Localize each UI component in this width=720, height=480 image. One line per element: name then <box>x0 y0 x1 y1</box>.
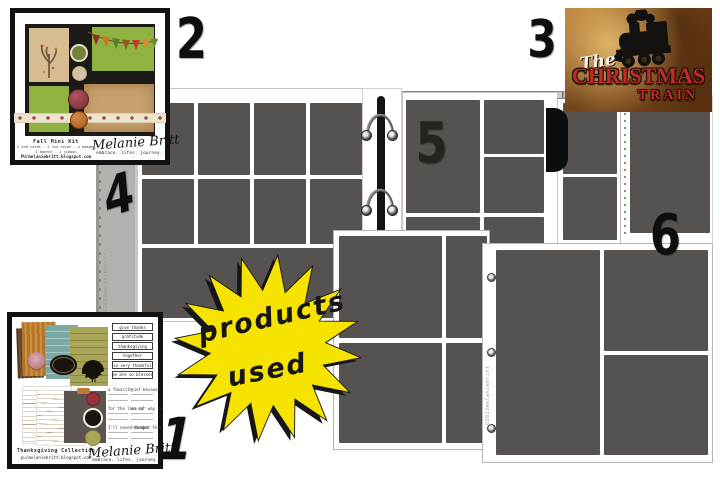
page-eyelet <box>487 424 496 433</box>
tg-prompt: on our way to <box>131 406 153 411</box>
ring-grommet <box>387 205 398 216</box>
number-4: 4 <box>102 163 136 226</box>
photo-slot <box>563 103 617 174</box>
tg-banner-label: thanksgiving <box>118 344 147 349</box>
tg-banner: give thanks <box>112 323 153 331</box>
index-tab <box>546 108 568 172</box>
page-six-watermark: ©2013melaniebritt <box>485 365 491 425</box>
tg-banner-label: give thanks <box>119 325 146 330</box>
ring-grommet <box>361 205 372 216</box>
photo-slot <box>446 343 487 443</box>
journal-line <box>108 432 128 433</box>
journal-line <box>131 400 153 401</box>
photo-slot <box>604 355 708 455</box>
number-6: 6 <box>650 208 681 264</box>
tg-prompt: for the love of <box>108 406 128 411</box>
tg-prompt: remember this. <box>131 425 153 430</box>
journal-line <box>108 394 128 395</box>
train-word-christmas: Christmas <box>566 63 711 89</box>
tg-prompt: just because <box>131 387 153 392</box>
album-watermark: ©2013melaniebritt <box>103 252 109 312</box>
tg-badge-turkey <box>83 408 103 428</box>
number-5: 5 <box>416 116 448 172</box>
tg-prompt: I'll never forget <box>108 425 128 430</box>
fall-badge-leaf <box>70 44 88 62</box>
number-3: 3 <box>527 14 557 66</box>
tg-badge-olive <box>85 430 101 446</box>
journal-line <box>131 413 153 414</box>
collage-canvas: ©2013melaniebritt ©2013melaniebritt ©201… <box>0 0 720 480</box>
tg-banner-label: so very thankful <box>113 363 152 368</box>
photo-slot <box>254 179 306 244</box>
tg-ornate-stamp <box>50 355 77 375</box>
journal-line <box>108 438 128 439</box>
tg-banner: we are so blessed <box>112 371 153 379</box>
photo-slot <box>563 177 617 240</box>
fall-tree-icon <box>33 38 65 80</box>
photo-slot <box>484 157 544 213</box>
tg-banner: together <box>112 352 153 360</box>
tg-banner: thanksgiving <box>112 342 153 350</box>
ring-grommet <box>361 130 372 141</box>
tg-badge-red <box>86 392 100 406</box>
fall-kit-kraft-card <box>84 84 154 132</box>
fall-badge-berry <box>68 89 89 110</box>
journal-line <box>108 419 128 420</box>
fall-badge-pumpkin <box>70 111 88 129</box>
tg-url: pu/melaniebritt.blogspot.com <box>16 455 96 460</box>
fall-badge-tree <box>72 66 87 81</box>
photo-slot <box>496 250 600 455</box>
journal-line <box>131 394 153 395</box>
fall-kit-ribbon <box>14 113 166 123</box>
tg-tagline: embrace. lifes. journey. <box>92 458 158 463</box>
turkey-icon <box>80 355 106 383</box>
ring-grommet <box>387 130 398 141</box>
fall-kit-tagline: embrace. lifes. journey. <box>96 151 162 156</box>
fall-kit-green-card-2 <box>29 86 69 132</box>
fall-kit-url: PU/melaniebritt.blogspot.com <box>16 154 96 159</box>
perforation-dots <box>624 99 626 239</box>
photo-slot <box>254 103 306 175</box>
photo-slot <box>198 179 250 244</box>
photo-slot <box>446 236 487 338</box>
journal-line <box>131 419 153 420</box>
page-eyelet <box>487 348 496 357</box>
bunting-banner-icon <box>88 28 158 62</box>
tg-banner: gratitude <box>112 333 153 341</box>
tg-flower <box>28 352 45 369</box>
number-2: 2 <box>176 12 207 68</box>
journal-line <box>131 432 153 433</box>
tg-banner-label: together <box>123 353 142 358</box>
tg-prompt: a favorite <box>108 387 128 392</box>
journal-line <box>108 400 128 401</box>
tg-banner-label: we are so blessed <box>112 372 153 377</box>
journal-line <box>108 413 128 414</box>
journal-line <box>131 438 153 439</box>
photo-slot <box>142 179 194 244</box>
page-eyelet <box>487 273 496 282</box>
train-word-train: Train <box>630 88 706 104</box>
fall-kit-detail-1: 2 4x6 cards - 2 3x4 cards - 4 badges <box>16 145 96 149</box>
tg-title: Thanksgiving Collection <box>16 448 96 454</box>
page-perforation-strip <box>620 97 629 243</box>
tg-banner: so very thankful <box>112 361 153 369</box>
photo-slot <box>484 100 544 154</box>
photo-slot <box>198 103 250 175</box>
tg-banner-label: gratitude <box>122 334 144 339</box>
